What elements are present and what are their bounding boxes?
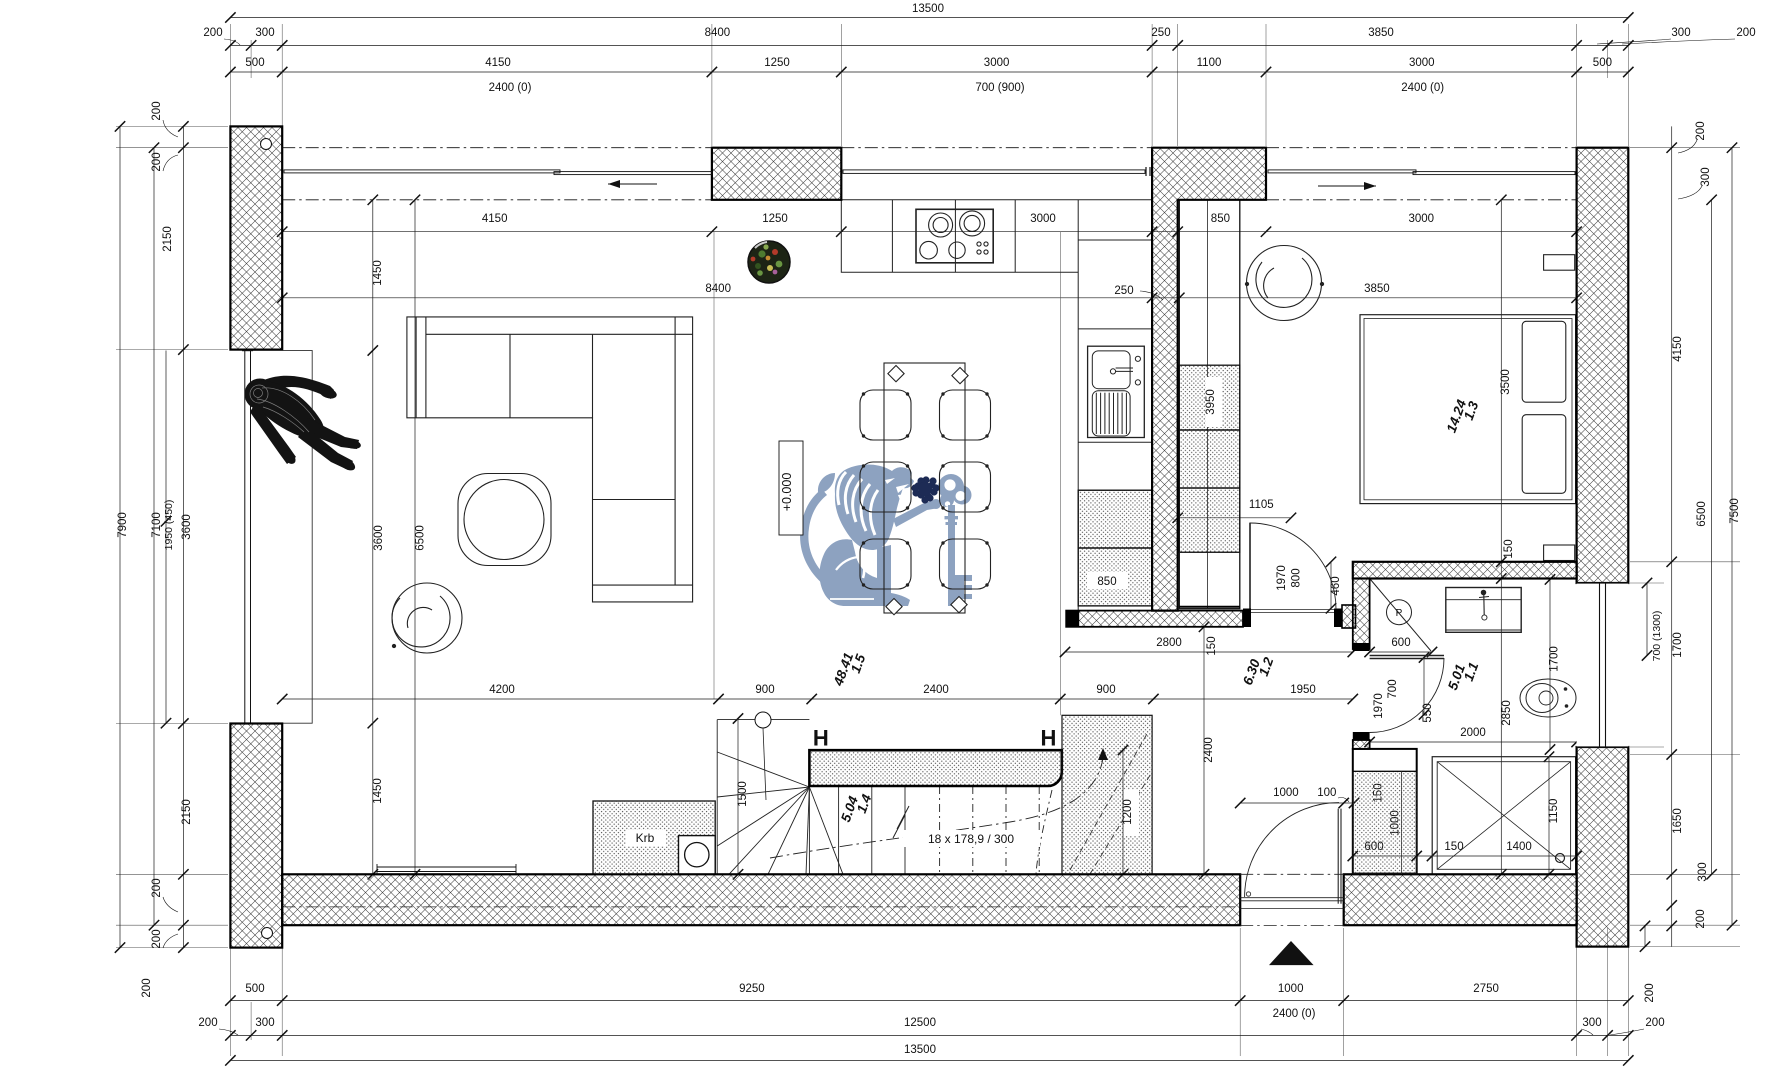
svg-text:850: 850 [1097, 576, 1116, 588]
svg-text:500: 500 [245, 57, 264, 69]
svg-text:200: 200 [1695, 909, 1707, 928]
svg-text:1000: 1000 [1273, 787, 1299, 799]
svg-text:700 (1300): 700 (1300) [1651, 611, 1663, 662]
svg-text:6500: 6500 [1696, 501, 1708, 527]
svg-text:1400: 1400 [1506, 841, 1532, 853]
svg-text:900: 900 [1096, 684, 1115, 696]
svg-text:4150: 4150 [1672, 336, 1684, 362]
svg-text:12500: 12500 [904, 1017, 936, 1029]
svg-text:H: H [1041, 726, 1057, 751]
svg-text:1950: 1950 [1290, 684, 1316, 696]
svg-text:200: 200 [151, 152, 163, 171]
svg-text:600: 600 [1391, 637, 1410, 649]
svg-text:8400: 8400 [705, 27, 731, 39]
svg-text:8400: 8400 [705, 283, 731, 295]
svg-text:3600: 3600 [181, 514, 193, 540]
svg-text:250: 250 [1114, 285, 1133, 297]
svg-text:900: 900 [755, 684, 774, 696]
svg-text:6500: 6500 [415, 525, 427, 551]
svg-text:700: 700 [1387, 679, 1399, 698]
svg-text:3850: 3850 [1364, 283, 1390, 295]
svg-text:200: 200 [1736, 27, 1755, 39]
svg-text:Krb: Krb [636, 831, 655, 845]
svg-text:2400 (0): 2400 (0) [1273, 1008, 1316, 1020]
svg-text:200: 200 [151, 929, 163, 948]
svg-text:2400: 2400 [923, 684, 949, 696]
svg-text:1450: 1450 [372, 260, 384, 286]
svg-text:1000: 1000 [1278, 983, 1304, 995]
svg-text:9250: 9250 [739, 983, 765, 995]
svg-text:1700: 1700 [1672, 632, 1684, 658]
svg-text:2400 (0): 2400 (0) [489, 82, 532, 94]
svg-text:3850: 3850 [1368, 27, 1394, 39]
svg-text:100: 100 [1317, 787, 1336, 799]
svg-text:1250: 1250 [762, 213, 788, 225]
svg-text:1100: 1100 [1197, 57, 1222, 69]
svg-text:1950 (450): 1950 (450) [163, 500, 175, 551]
svg-text:1250: 1250 [764, 57, 790, 69]
svg-text:200: 200 [1695, 121, 1707, 140]
svg-text:1970: 1970 [1276, 565, 1288, 591]
svg-text:3600: 3600 [373, 525, 385, 551]
svg-text:+0.000: +0.000 [780, 473, 794, 512]
svg-text:200: 200 [203, 27, 222, 39]
svg-text:500: 500 [245, 983, 264, 995]
svg-text:2150: 2150 [162, 226, 174, 252]
svg-text:3000: 3000 [1030, 213, 1056, 225]
svg-text:200: 200 [1644, 983, 1656, 1002]
svg-text:150: 150 [1206, 636, 1218, 655]
svg-text:2400: 2400 [1203, 737, 1215, 763]
svg-text:1700: 1700 [1549, 646, 1561, 672]
svg-text:500: 500 [1593, 57, 1612, 69]
svg-text:H: H [813, 726, 829, 751]
svg-text:1200: 1200 [1122, 799, 1134, 825]
svg-text:2750: 2750 [1473, 983, 1499, 995]
svg-text:2400 (0): 2400 (0) [1401, 82, 1444, 94]
svg-text:850: 850 [1211, 213, 1230, 225]
svg-text:7900: 7900 [117, 512, 129, 538]
svg-text:3500: 3500 [1500, 369, 1512, 395]
svg-text:1970: 1970 [1373, 693, 1385, 719]
svg-text:300: 300 [1671, 27, 1690, 39]
svg-text:2850: 2850 [1501, 700, 1513, 726]
svg-text:4150: 4150 [482, 213, 508, 225]
svg-text:200: 200 [151, 878, 163, 897]
svg-text:7500: 7500 [1729, 498, 1741, 524]
svg-text:250: 250 [1151, 27, 1170, 39]
svg-text:3000: 3000 [1409, 213, 1435, 225]
svg-text:13500: 13500 [904, 1044, 936, 1056]
svg-text:1150: 1150 [1548, 799, 1560, 824]
svg-text:3000: 3000 [984, 57, 1010, 69]
svg-text:300: 300 [255, 27, 274, 39]
svg-text:150: 150 [1444, 841, 1463, 853]
svg-text:4200: 4200 [489, 684, 515, 696]
svg-text:300: 300 [1582, 1017, 1601, 1029]
svg-text:2000: 2000 [1460, 727, 1486, 739]
svg-text:200: 200 [198, 1017, 217, 1029]
svg-text:300: 300 [1700, 167, 1712, 186]
svg-text:150: 150 [1503, 539, 1515, 558]
svg-text:3000: 3000 [1409, 57, 1435, 69]
svg-text:460: 460 [1330, 576, 1342, 595]
svg-text:200: 200 [151, 101, 163, 120]
svg-text:7100: 7100 [151, 512, 163, 538]
svg-text:2150: 2150 [181, 799, 193, 825]
svg-text:800: 800 [1291, 568, 1303, 587]
svg-text:P: P [1396, 608, 1403, 619]
svg-text:200: 200 [141, 978, 153, 997]
svg-text:200: 200 [1645, 1017, 1664, 1029]
svg-text:700 (900): 700 (900) [975, 82, 1024, 94]
svg-text:4150: 4150 [485, 57, 511, 69]
svg-text:3950: 3950 [1205, 389, 1217, 415]
svg-text:300: 300 [255, 1017, 274, 1029]
svg-text:1105: 1105 [1249, 499, 1274, 511]
svg-text:2800: 2800 [1156, 637, 1182, 649]
svg-text:13500: 13500 [912, 3, 944, 15]
svg-text:1650: 1650 [1672, 808, 1684, 834]
svg-text:550: 550 [1422, 703, 1434, 722]
svg-text:1450: 1450 [372, 778, 384, 804]
svg-text:18 x 178,9 / 300: 18 x 178,9 / 300 [928, 832, 1014, 846]
